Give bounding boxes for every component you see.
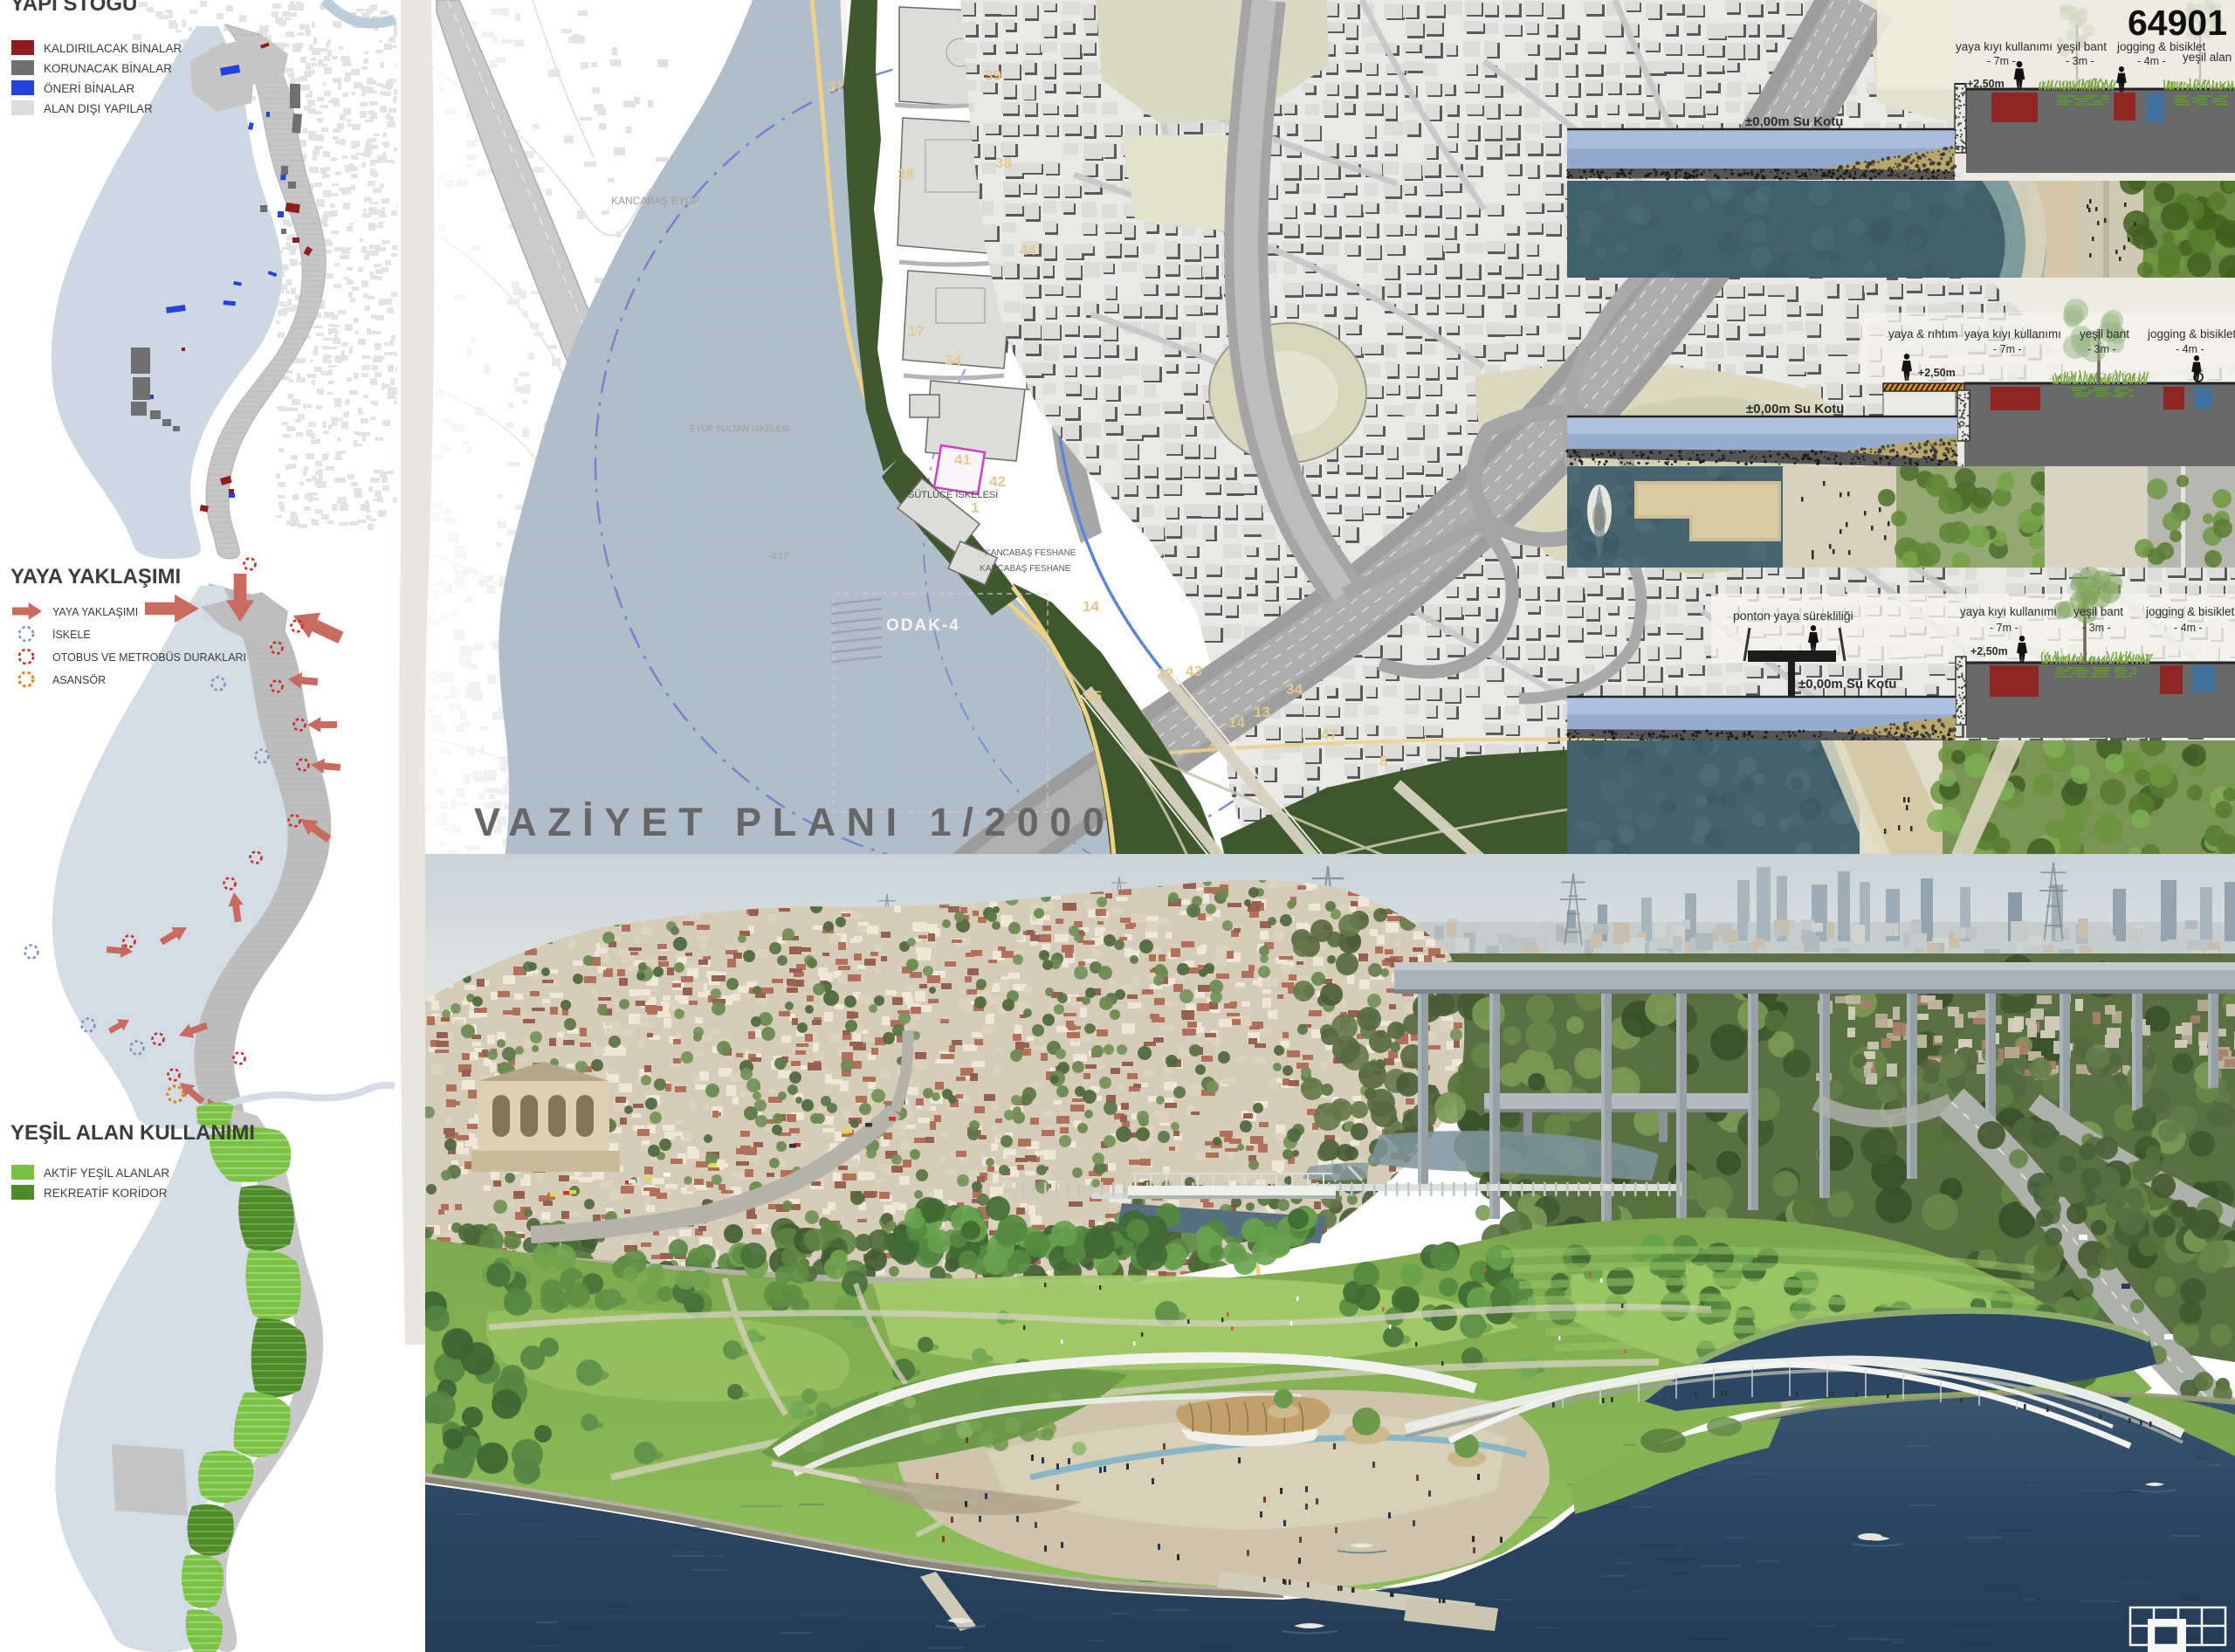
svg-text:+2,50m: +2,50m xyxy=(1918,367,1956,379)
svg-text:yeşil bant: yeşil bant xyxy=(2057,40,2107,53)
svg-text:32: 32 xyxy=(1157,665,1173,682)
svg-text:8: 8 xyxy=(1379,753,1387,769)
svg-text:ÖNERİ BİNALAR: ÖNERİ BİNALAR xyxy=(44,82,135,95)
svg-text:YAPI STOĞU: YAPI STOĞU xyxy=(10,0,137,16)
svg-text:34: 34 xyxy=(945,352,961,368)
svg-text:37: 37 xyxy=(828,79,844,95)
svg-text:ponton yaya sürekliliği: ponton yaya sürekliliği xyxy=(1733,609,1853,623)
svg-text:VAZİYET PLANI 1/2000: VAZİYET PLANI 1/2000 xyxy=(474,800,1115,844)
svg-text:yeşil bant: yeşil bant xyxy=(2080,327,2129,341)
svg-text:38: 38 xyxy=(897,166,914,182)
svg-text:- 4m -: - 4m - xyxy=(2176,343,2204,355)
svg-text:yeşil bant: yeşil bant xyxy=(2073,605,2123,618)
svg-text:İSKELE: İSKELE xyxy=(52,629,91,641)
svg-text:REKREATİF KORİDOR: REKREATİF KORİDOR xyxy=(44,1187,168,1200)
svg-text:KORUNACAK BİNALAR: KORUNACAK BİNALAR xyxy=(44,62,172,75)
svg-text:38: 38 xyxy=(995,155,1012,171)
svg-text:ODAK-4: ODAK-4 xyxy=(886,616,960,635)
svg-text:KANCABAŞ FESHANE: KANCABAŞ FESHANE xyxy=(985,548,1076,558)
svg-text:ALAN DIŞI YAPILAR: ALAN DIŞI YAPILAR xyxy=(44,102,153,115)
svg-text:KANCABAŞ EYÜP: KANCABAŞ EYÜP xyxy=(611,195,699,207)
svg-text:ASANSÖR: ASANSÖR xyxy=(52,674,106,686)
svg-text:4: 4 xyxy=(1207,740,1216,756)
svg-text:17: 17 xyxy=(908,323,925,340)
svg-text:yaya kıyı kullanımı: yaya kıyı kullanımı xyxy=(1956,40,2053,53)
svg-text:42: 42 xyxy=(989,473,1006,490)
svg-text:AKTİF YEŞİL ALANLAR: AKTİF YEŞİL ALANLAR xyxy=(44,1167,169,1180)
svg-text:±0,00m Su Kotu: ±0,00m Su Kotu xyxy=(1746,402,1844,416)
svg-text:+2,50m: +2,50m xyxy=(1970,645,2008,657)
svg-text:yeşil alan: yeşil alan xyxy=(2183,51,2232,64)
svg-text:- 7m -: - 7m - xyxy=(1990,622,2018,634)
svg-text:SÜTLÜCE İSKELESİ: SÜTLÜCE İSKELESİ xyxy=(908,489,998,500)
svg-text:34: 34 xyxy=(1286,681,1303,698)
svg-text:14: 14 xyxy=(1228,714,1245,731)
svg-text:yaya kıyı kullanımı: yaya kıyı kullanımı xyxy=(1960,605,2057,618)
svg-text:KANCABAŞ FESHANE: KANCABAŞ FESHANE xyxy=(980,564,1071,574)
svg-text:- 7m -: - 7m - xyxy=(1993,343,2022,355)
svg-text:44: 44 xyxy=(1020,242,1036,258)
svg-text:KALDIRILACAK BİNALAR: KALDIRILACAK BİNALAR xyxy=(44,42,182,55)
svg-text:43: 43 xyxy=(1186,663,1202,679)
svg-text:- 3m -: - 3m - xyxy=(2066,55,2094,67)
svg-text:47: 47 xyxy=(1321,726,1338,743)
svg-text:YEŞİL ALAN KULLANIMI: YEŞİL ALAN KULLANIMI xyxy=(10,1121,255,1145)
svg-text:13: 13 xyxy=(1254,704,1270,720)
svg-text:±0,00m Su Kotu: ±0,00m Su Kotu xyxy=(1798,677,1896,692)
svg-text:yaya kıyı kullanımı: yaya kıyı kullanımı xyxy=(1964,327,2061,341)
svg-text:41: 41 xyxy=(954,451,971,468)
svg-text:yaya & rıhtım: yaya & rıhtım xyxy=(1888,327,1958,341)
svg-text:- 4m -: - 4m - xyxy=(2137,55,2166,67)
svg-text:YAYA YAKLAŞIMI: YAYA YAKLAŞIMI xyxy=(10,565,181,589)
svg-text:-4.17: -4.17 xyxy=(768,552,788,561)
svg-text:64901: 64901 xyxy=(2128,3,2227,43)
svg-text:1: 1 xyxy=(971,499,979,516)
svg-text:- 4m -: - 4m - xyxy=(2174,622,2203,634)
svg-text:- 3m -: - 3m - xyxy=(2087,343,2116,355)
svg-text:OTOBUS VE METROBÜS DURAKLARI: OTOBUS VE METROBÜS DURAKLARI xyxy=(52,651,246,664)
svg-text:- 3m -: - 3m - xyxy=(2082,622,2111,634)
svg-text:EYÜP SULTAN İSKELESİ: EYÜP SULTAN İSKELESİ xyxy=(690,423,790,434)
svg-text:±0,00m Su Kotu: ±0,00m Su Kotu xyxy=(1745,114,1843,129)
svg-text:jogging & bisiklet: jogging & bisiklet xyxy=(2147,327,2235,341)
svg-text:39: 39 xyxy=(985,67,1001,84)
svg-text:- 7m -: - 7m - xyxy=(1987,55,2016,67)
svg-text:45: 45 xyxy=(1085,688,1102,705)
svg-text:YAYA YAKLAŞIMI: YAYA YAKLAŞIMI xyxy=(52,606,138,618)
svg-text:jogging & bisiklet: jogging & bisiklet xyxy=(2145,605,2235,618)
svg-text:14: 14 xyxy=(1083,598,1099,615)
svg-text:+2,50m: +2,50m xyxy=(1967,78,2005,90)
